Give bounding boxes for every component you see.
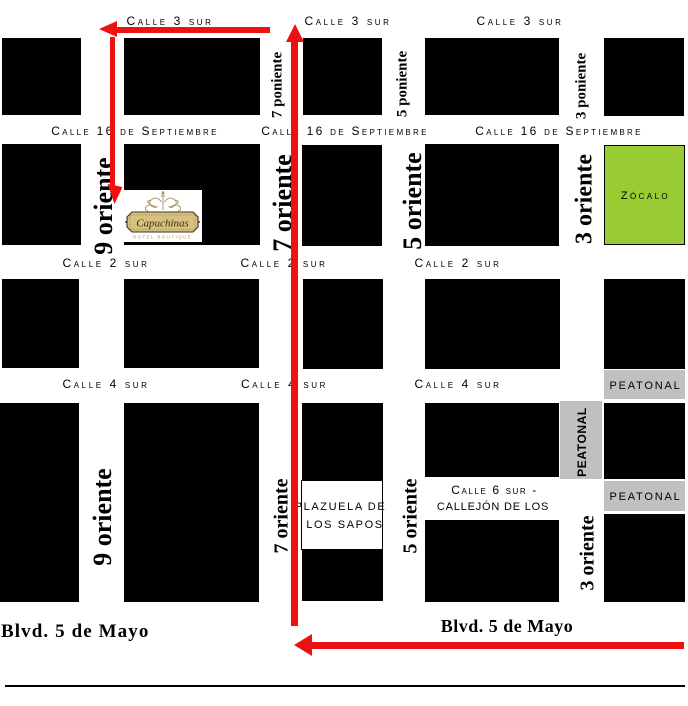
svg-text:HOTEL BOUTIQUE: HOTEL BOUTIQUE xyxy=(133,235,192,240)
svg-text:Capuchinas: Capuchinas xyxy=(136,218,189,230)
